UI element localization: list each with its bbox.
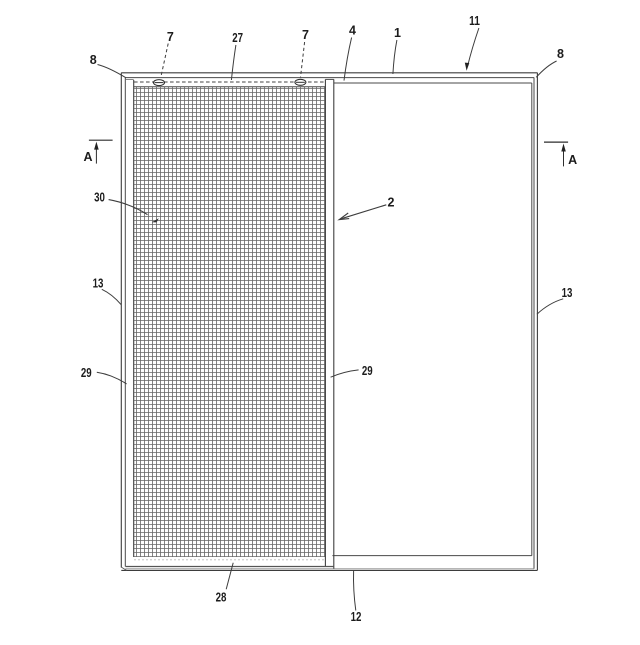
svg-text:7: 7	[167, 30, 174, 44]
svg-text:A: A	[83, 150, 92, 164]
svg-text:28: 28	[216, 591, 227, 605]
svg-text:12: 12	[351, 610, 362, 624]
svg-text:13: 13	[562, 286, 573, 300]
svg-text:29: 29	[81, 366, 92, 380]
svg-text:2: 2	[388, 196, 395, 210]
svg-text:11: 11	[469, 14, 480, 28]
svg-text:8: 8	[557, 47, 564, 61]
svg-text:29: 29	[362, 364, 373, 378]
svg-text:1: 1	[394, 26, 401, 40]
svg-text:A: A	[568, 153, 577, 167]
svg-text:30: 30	[94, 191, 105, 205]
svg-text:13: 13	[93, 277, 104, 291]
svg-text:4: 4	[349, 24, 356, 38]
svg-text:27: 27	[232, 31, 243, 45]
svg-text:7: 7	[302, 28, 309, 42]
svg-text:8: 8	[90, 53, 97, 67]
